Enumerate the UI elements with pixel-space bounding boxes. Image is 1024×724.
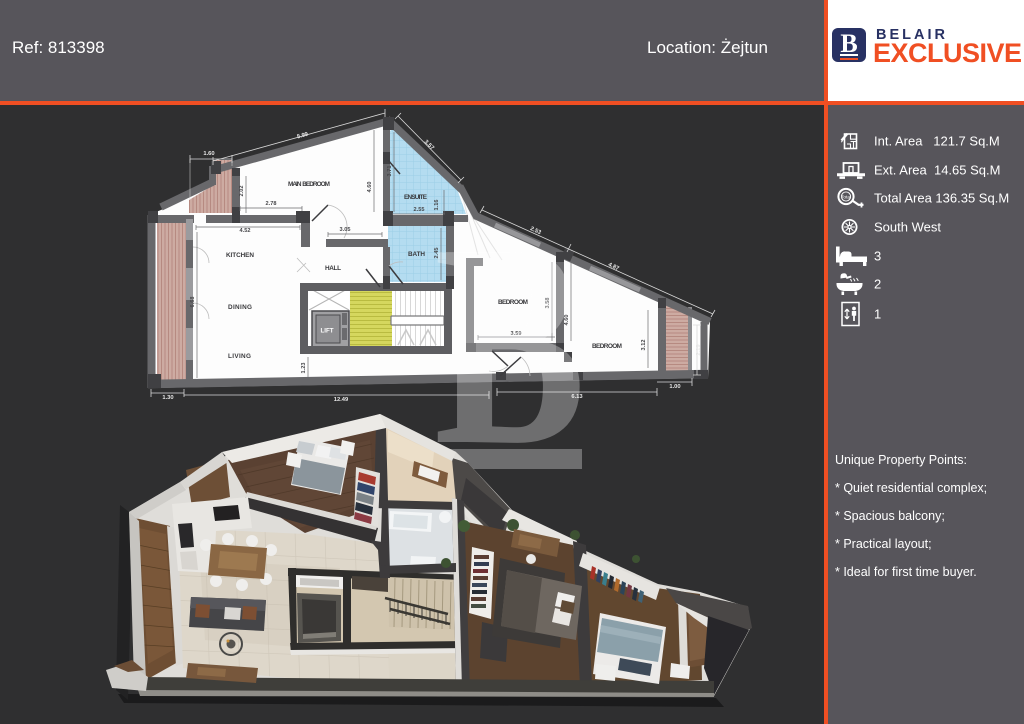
svg-text:4.52: 4.52: [240, 228, 251, 234]
svg-text:2.55: 2.55: [414, 207, 425, 213]
svg-text:3.12: 3.12: [641, 340, 647, 351]
svg-text:1.60: 1.60: [203, 151, 214, 157]
svg-text:1.00: 1.00: [669, 384, 680, 390]
svg-text:12.49: 12.49: [334, 397, 349, 403]
svg-text:LIFT: LIFT: [320, 328, 333, 335]
svg-text:2.78: 2.78: [266, 201, 277, 207]
svg-text:2.02: 2.02: [239, 186, 245, 197]
svg-text:BATH: BATH: [408, 251, 425, 258]
svg-text:LIVING: LIVING: [228, 353, 251, 360]
svg-text:MAIN BEDROOM: MAIN BEDROOM: [288, 181, 330, 188]
svg-text:BEDROOM: BEDROOM: [592, 343, 622, 350]
svg-text:3.71: 3.71: [387, 166, 393, 177]
svg-text:ENSUITE: ENSUITE: [404, 194, 428, 201]
svg-text:1.23: 1.23: [301, 363, 307, 374]
svg-text:3.05: 3.05: [340, 227, 351, 233]
svg-text:DINING: DINING: [228, 304, 252, 311]
svg-text:HALL: HALL: [325, 265, 341, 272]
svg-text:KITCHEN: KITCHEN: [226, 252, 254, 259]
svg-text:4.60: 4.60: [367, 182, 373, 193]
svg-text:1.30: 1.30: [162, 395, 173, 401]
svg-text:6.68: 6.68: [190, 297, 196, 308]
